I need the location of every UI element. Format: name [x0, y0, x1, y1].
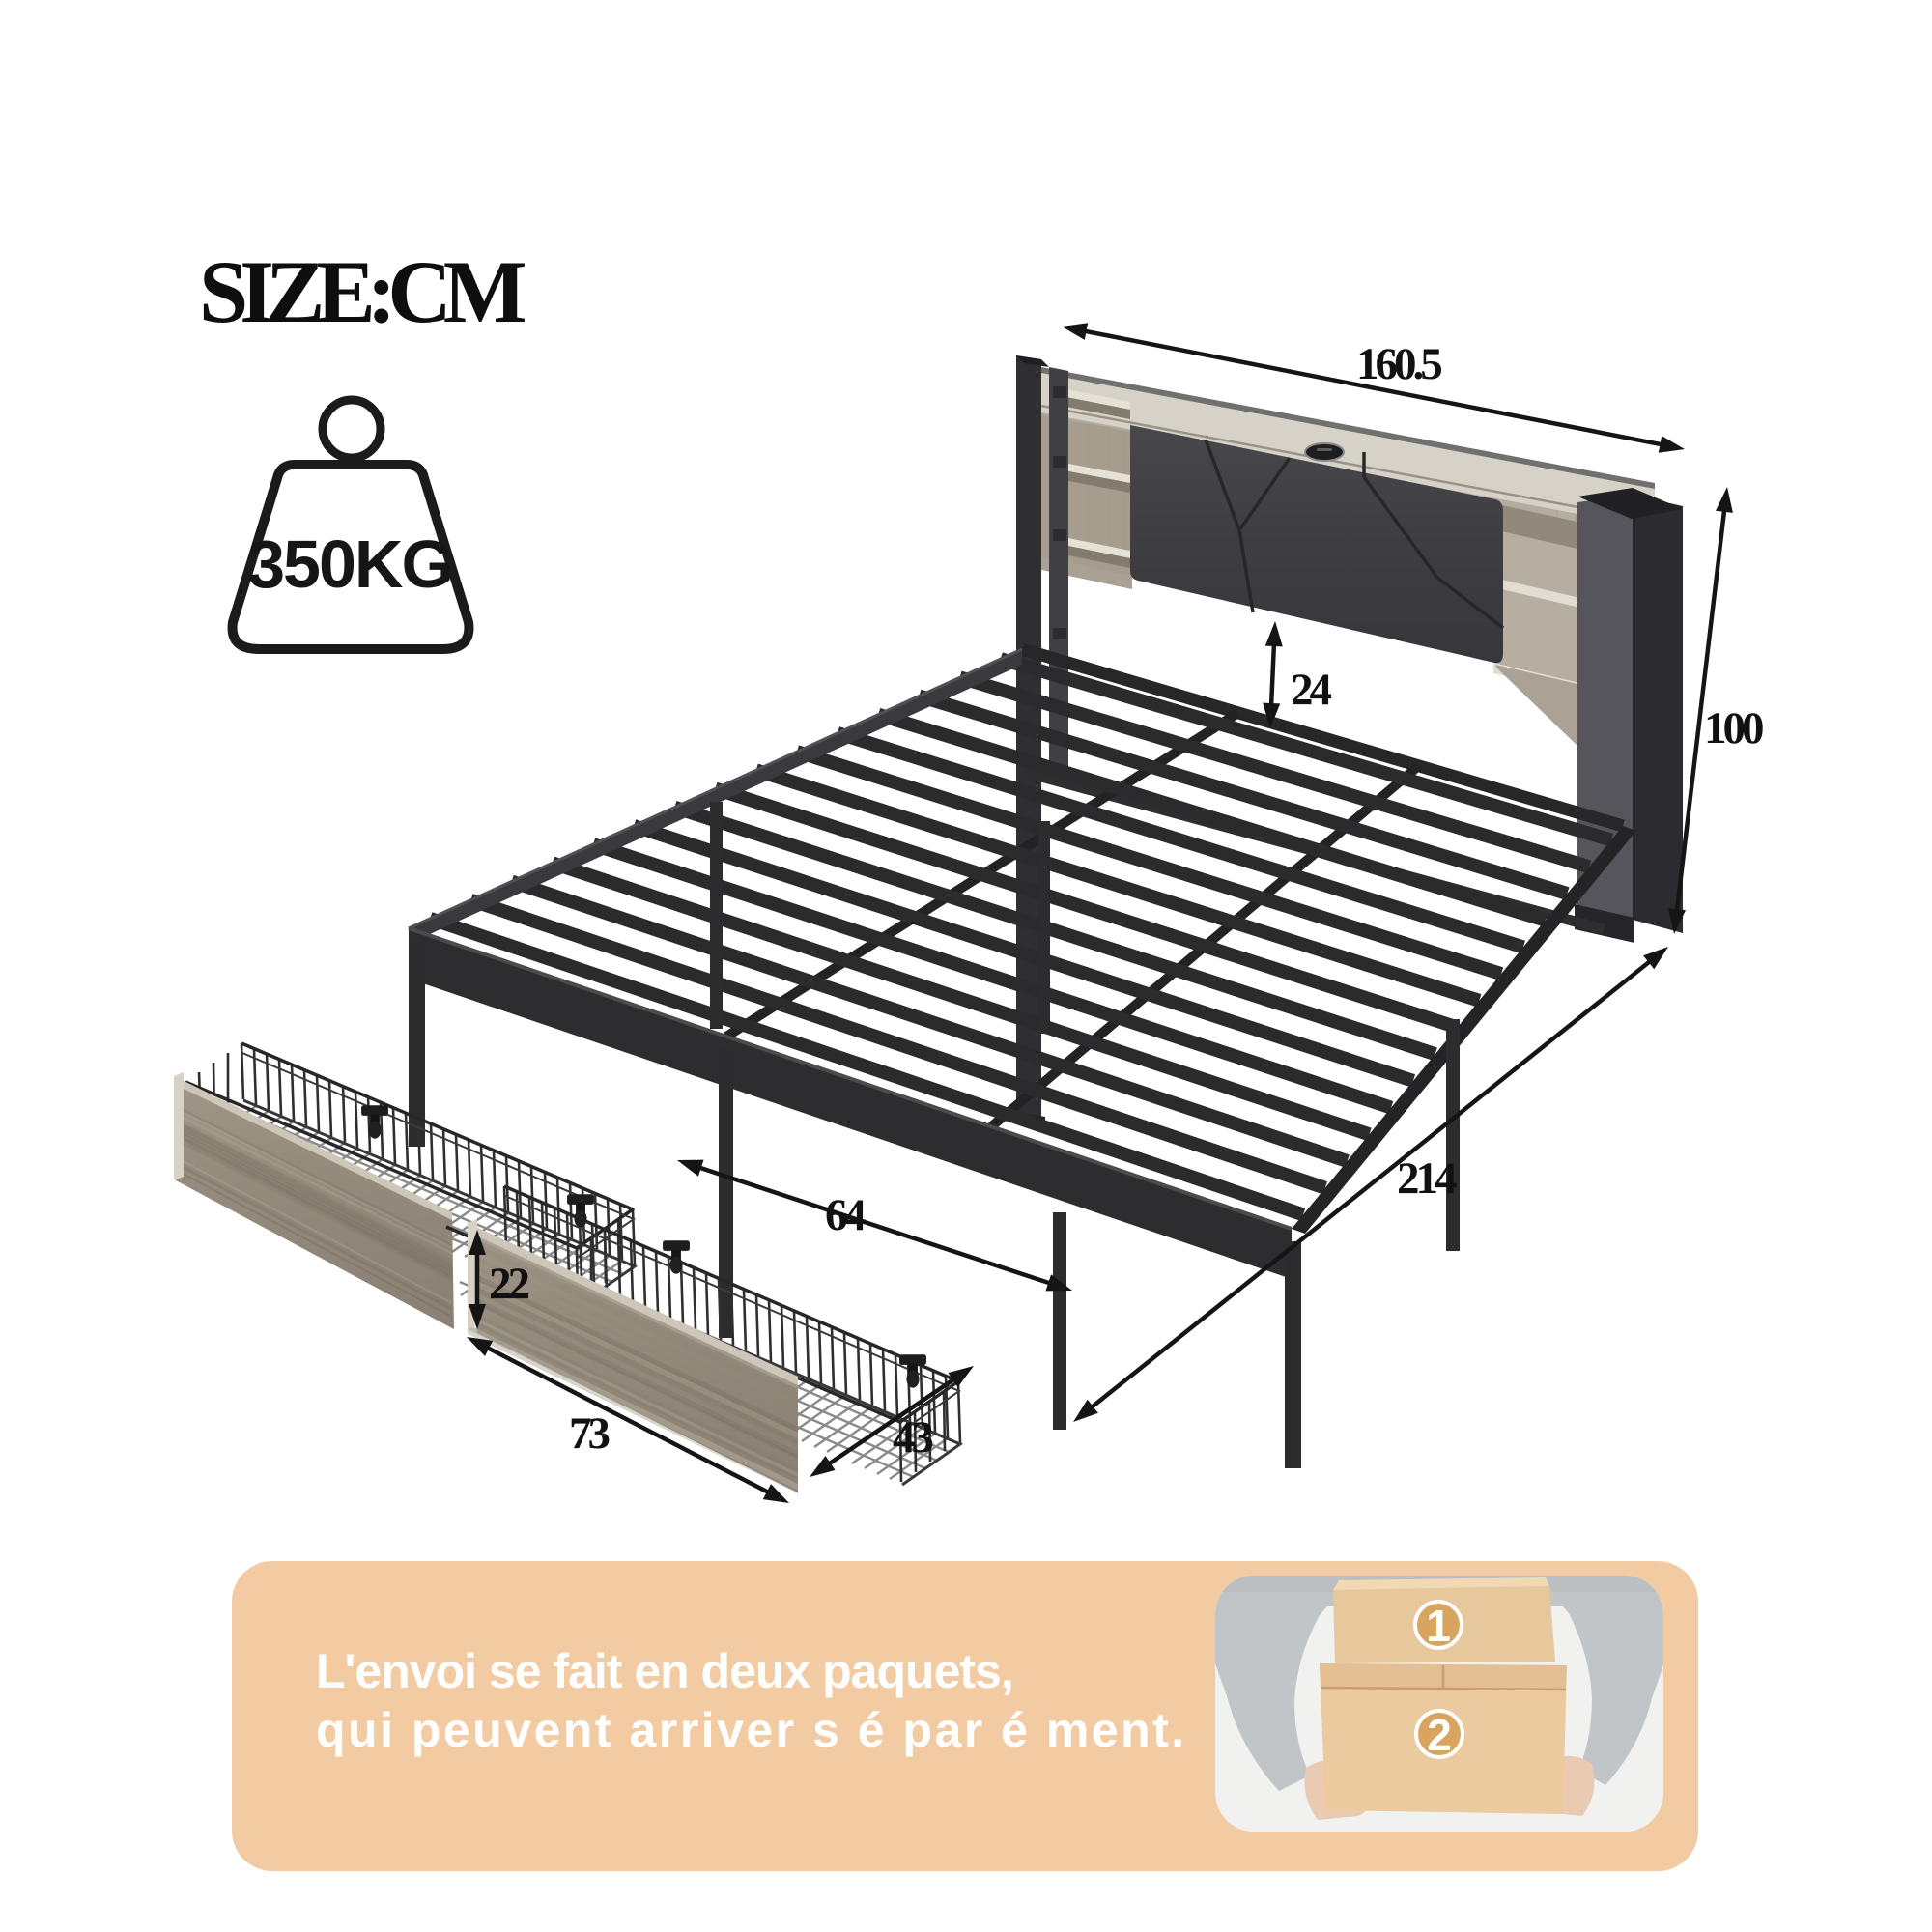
svg-text:SIZE:CM: SIZE:CM: [199, 242, 526, 341]
svg-text:64: 64: [825, 1190, 867, 1240]
svg-text:214: 214: [1397, 1153, 1457, 1204]
svg-text:1: 1: [1426, 1601, 1451, 1651]
svg-text:100: 100: [1704, 703, 1763, 753]
svg-text:qui peuvent arriver s é par é: qui peuvent arriver s é par é ment.: [316, 1703, 1187, 1757]
svg-text:22: 22: [489, 1259, 529, 1309]
svg-text:350KG: 350KG: [247, 526, 452, 602]
svg-text:24: 24: [1291, 665, 1332, 715]
svg-text:2: 2: [1427, 1710, 1452, 1760]
svg-text:73: 73: [569, 1408, 610, 1459]
svg-text:160.5: 160.5: [1356, 339, 1441, 389]
svg-text:43: 43: [893, 1412, 933, 1463]
svg-text:L'envoi se fait en deux paquet: L'envoi se fait en deux paquets,: [316, 1644, 1013, 1698]
